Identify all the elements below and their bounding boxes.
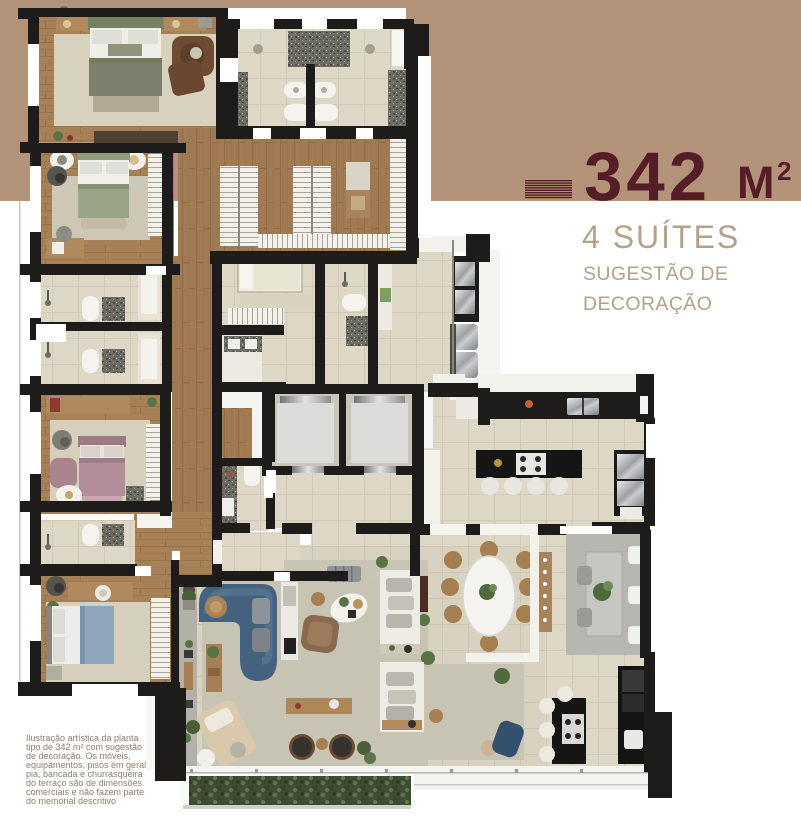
svg-text:DECORAÇÃO: DECORAÇÃO [583,291,712,315]
svg-text:do memorial descritivo: do memorial descritivo [26,796,116,806]
svg-text:2: 2 [777,156,791,186]
svg-text:M: M [737,157,775,208]
svg-text:342: 342 [584,138,711,215]
svg-text:SUGESTÃO DE: SUGESTÃO DE [583,261,728,285]
svg-text:4 SUÍTES: 4 SUÍTES [582,219,740,255]
